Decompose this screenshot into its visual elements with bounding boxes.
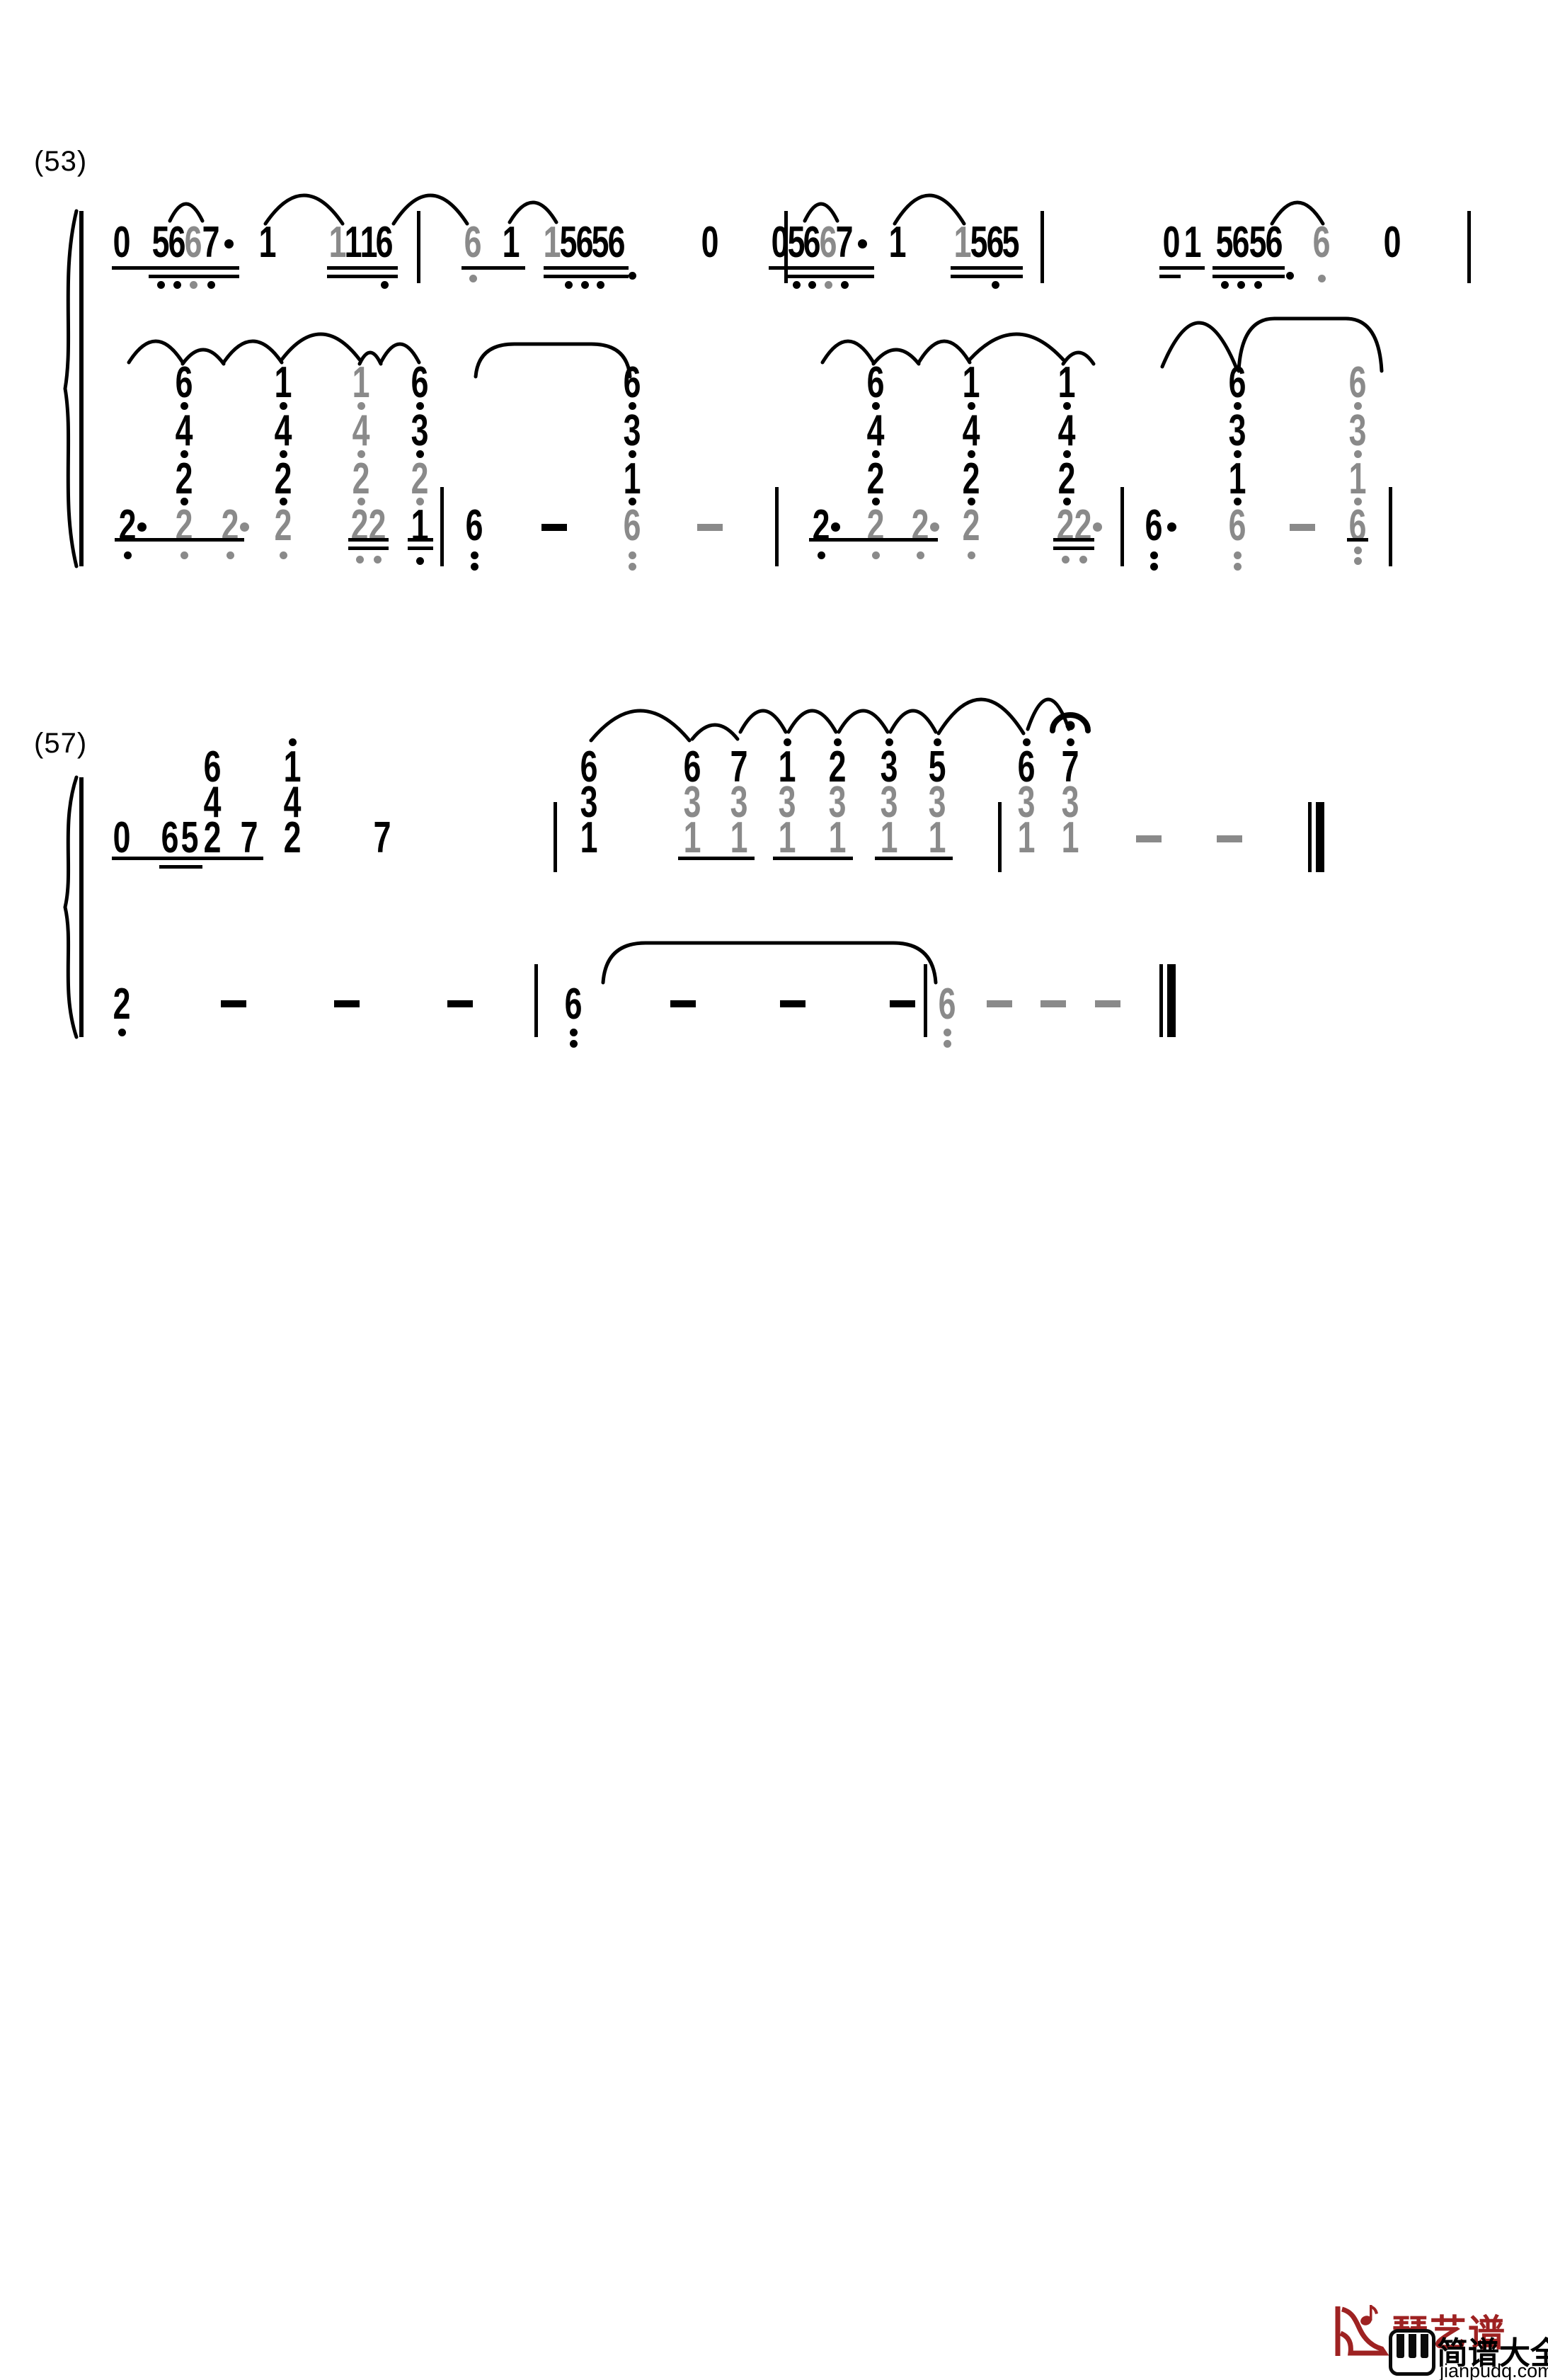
note-digit: 0 <box>113 227 131 259</box>
octave-dot <box>1318 275 1326 282</box>
beam <box>544 275 629 278</box>
system-label-53: (53) <box>34 146 87 178</box>
octave-dot <box>841 281 849 289</box>
octave-dot <box>1254 281 1262 289</box>
slur <box>1162 323 1236 367</box>
beam <box>1053 547 1094 550</box>
note-digit: 6 <box>185 227 202 259</box>
augmentation-dot <box>1167 522 1176 532</box>
note-digit: 1 <box>881 822 898 854</box>
octave-dot <box>1079 556 1087 563</box>
note-digit: 1 <box>1184 227 1202 259</box>
octave-dot <box>1023 738 1031 746</box>
octave-dot <box>1067 738 1074 746</box>
beam <box>115 538 244 542</box>
note-digit: 5 <box>592 227 609 259</box>
note-digit: 3 <box>1229 415 1246 447</box>
octave-dot <box>471 563 478 571</box>
octave-dot <box>885 738 893 746</box>
note-digit: 6 <box>176 367 193 399</box>
note-digit: 6 <box>466 510 483 542</box>
octave-dot <box>357 450 365 458</box>
octave-dot <box>1234 498 1242 505</box>
octave-dot <box>1354 450 1362 458</box>
beam <box>202 857 263 860</box>
note-digit: 0 <box>1163 227 1181 259</box>
octave-dot <box>180 551 188 559</box>
slur <box>394 195 467 224</box>
beam <box>1159 266 1205 270</box>
octave-dot <box>629 551 636 559</box>
barline <box>79 777 84 1037</box>
note-digit: 1 <box>929 822 946 854</box>
beam <box>678 857 755 860</box>
rest-dash <box>780 1000 805 1007</box>
octave-dot <box>1354 557 1362 565</box>
note-digit: 4 <box>352 415 370 447</box>
note-digit: 2 <box>176 463 193 496</box>
note-digit: 2 <box>275 463 292 496</box>
beam <box>820 266 874 270</box>
beam <box>1159 275 1181 278</box>
note-digit: 1 <box>1058 367 1076 399</box>
note-digit: 4 <box>1058 415 1076 447</box>
octave-dot <box>1354 498 1362 505</box>
octave-dot <box>416 450 424 458</box>
note-digit: 1 <box>954 227 972 259</box>
rest-dash <box>541 524 567 531</box>
rest-dash <box>697 524 723 531</box>
octave-dot <box>356 556 364 563</box>
note-digit: 6 <box>168 227 186 259</box>
barline <box>998 802 1002 872</box>
note-digit: 4 <box>275 415 292 447</box>
octave-dot <box>818 551 825 559</box>
note-digit: 4 <box>176 415 193 447</box>
octave-dot <box>124 551 132 559</box>
octave-dot <box>190 281 197 289</box>
octave-dot <box>565 281 573 289</box>
octave-dot <box>1063 450 1071 458</box>
octave-dot <box>784 738 791 746</box>
note-digit: 5 <box>181 822 199 854</box>
note-digit: 2 <box>113 988 131 1021</box>
note-digit: 0 <box>113 822 131 854</box>
fermata-icon <box>1053 715 1088 731</box>
note-digit: 1 <box>889 227 907 259</box>
octave-dot <box>1354 547 1362 554</box>
octave-dot <box>629 402 636 410</box>
note-digit: 6 <box>565 988 583 1021</box>
octave-dot <box>357 498 365 505</box>
octave-dot <box>1237 281 1245 289</box>
rest-dash <box>890 1000 915 1007</box>
augmentation-dot <box>1093 522 1102 532</box>
octave-dot <box>1062 556 1070 563</box>
note-digit: 6 <box>820 227 837 259</box>
beam <box>786 275 820 278</box>
octave-dot <box>416 557 424 565</box>
octave-dot <box>968 402 975 410</box>
barline <box>1040 211 1044 283</box>
note-digit: 6 <box>1349 367 1367 399</box>
note-digit: 2 <box>963 463 980 496</box>
barline <box>1167 964 1176 1037</box>
note-digit: 6 <box>624 367 641 399</box>
slur <box>603 943 936 983</box>
octave-dot <box>968 450 975 458</box>
slur <box>740 711 786 732</box>
octave-dot <box>416 402 424 410</box>
octave-dot <box>872 551 880 559</box>
beam <box>809 538 938 542</box>
note-digit: 4 <box>963 415 980 447</box>
beam <box>327 275 398 278</box>
barline <box>417 211 420 283</box>
slur <box>692 725 738 739</box>
note-digit: 2 <box>1058 463 1076 496</box>
octave-dot <box>207 281 215 289</box>
beam <box>185 266 239 270</box>
score-page: (53) (57) 琴艺谱 简谱大全 jianpudq.com 05667111… <box>0 0 1548 2380</box>
octave-dot <box>1063 498 1071 505</box>
rest-dash <box>987 1000 1012 1007</box>
octave-dot <box>173 281 181 289</box>
barline <box>440 487 444 566</box>
octave-dot <box>834 738 842 746</box>
beam <box>1212 275 1285 278</box>
octave-dot <box>1150 563 1158 571</box>
augmentation-dot <box>137 522 147 532</box>
octave-dot <box>280 551 287 559</box>
note-digit: 6 <box>867 367 885 399</box>
octave-dot <box>944 1029 951 1036</box>
note-digit: 0 <box>1384 227 1401 259</box>
note-digit: 6 <box>411 367 429 399</box>
slur <box>65 777 76 1037</box>
octave-dot <box>629 498 636 505</box>
note-digit: 1 <box>503 227 520 259</box>
octave-dot <box>1221 281 1229 289</box>
barline <box>924 964 927 1037</box>
octave-dot <box>1354 402 1362 410</box>
octave-dot <box>280 402 287 410</box>
note-digit: 1 <box>580 822 598 854</box>
barline <box>1316 802 1324 872</box>
barline <box>1308 802 1312 872</box>
octave-dot <box>992 281 999 289</box>
beam <box>185 275 239 278</box>
note-digit: 2 <box>352 463 370 496</box>
barline <box>79 211 84 566</box>
rest-dash <box>1095 1000 1120 1007</box>
note-digit: 2 <box>275 510 292 542</box>
octave-dot <box>180 498 188 505</box>
slur <box>591 711 689 740</box>
octave-dot <box>581 281 589 289</box>
note-digit: 1 <box>1229 463 1246 496</box>
note-digit: 6 <box>939 988 956 1021</box>
note-digit: 1 <box>259 227 277 259</box>
note-digit: 5 <box>1249 227 1267 259</box>
octave-dot <box>570 1029 578 1036</box>
note-digit: 5 <box>1002 227 1020 259</box>
beam <box>408 547 433 550</box>
note-digit: 1 <box>684 822 701 854</box>
barline <box>784 211 788 283</box>
slur <box>839 711 888 732</box>
note-digit: 1 <box>544 227 561 259</box>
barline <box>775 487 779 566</box>
beam <box>461 266 525 270</box>
slur <box>476 344 630 377</box>
beam <box>951 275 1023 278</box>
note-digit: 2 <box>963 510 980 542</box>
beam <box>112 266 185 270</box>
note-digit: 5 <box>152 227 170 259</box>
note-digit: 3 <box>1349 415 1367 447</box>
slur <box>65 211 76 566</box>
note-digit: 6 <box>464 227 482 259</box>
octave-dot <box>1234 551 1242 559</box>
note-digit: 0 <box>701 227 719 259</box>
octave-dot <box>934 738 941 746</box>
octave-dot <box>793 281 801 289</box>
octave-dot <box>629 272 636 280</box>
note-digit: 6 <box>1229 367 1246 399</box>
augmentation-dot <box>858 239 867 248</box>
note-digit: 7 <box>836 227 854 259</box>
octave-dot <box>180 402 188 410</box>
octave-dot <box>469 275 477 282</box>
fermata-dot <box>1066 721 1075 731</box>
note-digit: 5 <box>1216 227 1234 259</box>
note-digit: 5 <box>970 227 988 259</box>
beam <box>773 857 853 860</box>
beam <box>875 857 953 860</box>
note-digit: 6 <box>1232 227 1250 259</box>
note-digit: 3 <box>411 415 429 447</box>
augmentation-dot <box>831 522 840 532</box>
augmentation-dot <box>224 239 234 248</box>
qinyipu-logo-icon <box>1332 2304 1389 2357</box>
note-digit: 2 <box>867 463 885 496</box>
octave-dot <box>118 1029 126 1036</box>
octave-dot <box>917 551 924 559</box>
note-digit: 1 <box>624 463 641 496</box>
beam <box>1347 538 1368 542</box>
octave-dot <box>280 498 287 505</box>
octave-dot <box>968 498 975 505</box>
octave-dot <box>1063 402 1071 410</box>
note-digit: 7 <box>374 822 391 854</box>
slur <box>282 334 360 360</box>
rest-dash <box>334 1000 360 1007</box>
note-digit: 1 <box>1062 822 1079 854</box>
rest-dash <box>221 1000 246 1007</box>
piano-key-icon <box>1397 2334 1404 2358</box>
octave-dot <box>944 1040 951 1048</box>
rest-dash <box>1136 835 1162 842</box>
note-digit: 1 <box>779 822 796 854</box>
barline <box>1467 211 1471 283</box>
octave-dot <box>1234 402 1242 410</box>
note-digit: 1 <box>1349 463 1367 496</box>
octave-dot <box>416 498 424 505</box>
octave-dot <box>872 450 880 458</box>
note-digit: 2 <box>411 463 429 496</box>
barline <box>1159 964 1163 1037</box>
beam <box>408 538 433 542</box>
beam <box>1053 538 1094 542</box>
rest-dash <box>447 1000 473 1007</box>
barline <box>534 964 538 1037</box>
beam <box>327 266 398 270</box>
rest-dash <box>1290 524 1315 531</box>
octave-dot <box>629 450 636 458</box>
octave-dot <box>597 281 604 289</box>
note-digit: 7 <box>202 227 220 259</box>
note-digit: 1 <box>730 822 748 854</box>
piano-keys-icon <box>1389 2329 1435 2376</box>
slur-layer <box>0 0 1548 2380</box>
octave-dot <box>1286 272 1294 280</box>
octave-dot <box>374 556 382 563</box>
octave-dot <box>471 551 478 559</box>
system-label-57: (57) <box>34 728 87 760</box>
octave-dot <box>872 402 880 410</box>
barline <box>1120 487 1124 566</box>
octave-dot <box>570 1040 578 1048</box>
slur <box>822 341 873 362</box>
slur <box>224 341 282 362</box>
rest-dash <box>1040 1000 1066 1007</box>
note-digit: 6 <box>803 227 821 259</box>
beam <box>112 857 202 860</box>
beam <box>951 266 1023 270</box>
augmentation-dot <box>240 522 249 532</box>
octave-dot <box>808 281 816 289</box>
beam <box>769 266 820 270</box>
beam <box>820 275 874 278</box>
note-digit: 6 <box>624 510 641 542</box>
piano-key-icon <box>1409 2334 1416 2358</box>
note-digit: 6 <box>1266 227 1283 259</box>
octave-dot <box>289 738 297 746</box>
augmentation-dot <box>930 522 939 532</box>
watermark: 琴艺谱 简谱大全 jianpudq.com <box>1331 2299 1548 2380</box>
octave-dot <box>357 402 365 410</box>
note-digit: 6 <box>1229 510 1246 542</box>
octave-dot <box>381 281 389 289</box>
note-digit: 6 <box>1145 510 1163 542</box>
barline <box>1389 487 1392 566</box>
beam <box>1212 266 1285 270</box>
beam <box>149 275 185 278</box>
note-digit: 1 <box>275 367 292 399</box>
note-digit: 6 <box>204 751 222 784</box>
octave-dot <box>180 450 188 458</box>
slur <box>890 711 936 732</box>
octave-dot <box>280 450 287 458</box>
octave-dot <box>872 498 880 505</box>
slur <box>970 334 1063 360</box>
beam <box>544 266 629 270</box>
note-digit: 1 <box>829 822 847 854</box>
beam <box>348 547 389 550</box>
beam <box>159 865 202 869</box>
rest-dash <box>670 1000 696 1007</box>
slur <box>1028 699 1069 729</box>
octave-dot <box>968 551 975 559</box>
note-digit: 5 <box>560 227 578 259</box>
watermark-site-url: jianpudq.com <box>1440 2360 1548 2380</box>
slur <box>939 699 1024 733</box>
note-digit: 1 <box>963 367 980 399</box>
note-digit: 1 <box>284 751 302 784</box>
rest-dash <box>1217 835 1242 842</box>
slur <box>789 711 836 732</box>
octave-dot <box>1234 450 1242 458</box>
octave-dot <box>1150 551 1158 559</box>
piano-key-icon <box>1421 2334 1428 2358</box>
octave-dot <box>157 281 165 289</box>
barline <box>554 802 557 872</box>
note-digit: 6 <box>608 227 626 259</box>
note-digit: 6 <box>376 227 394 259</box>
note-digit: 3 <box>624 415 641 447</box>
octave-dot <box>629 563 636 571</box>
note-digit: 1 <box>1018 822 1036 854</box>
note-digit: 7 <box>241 822 258 854</box>
note-digit: 1 <box>352 367 370 399</box>
octave-dot <box>825 281 832 289</box>
beam <box>348 538 389 542</box>
octave-dot <box>227 551 234 559</box>
note-digit: 6 <box>161 822 179 854</box>
note-digit: 6 <box>1313 227 1331 259</box>
note-digit: 4 <box>867 415 885 447</box>
octave-dot <box>1234 563 1242 571</box>
